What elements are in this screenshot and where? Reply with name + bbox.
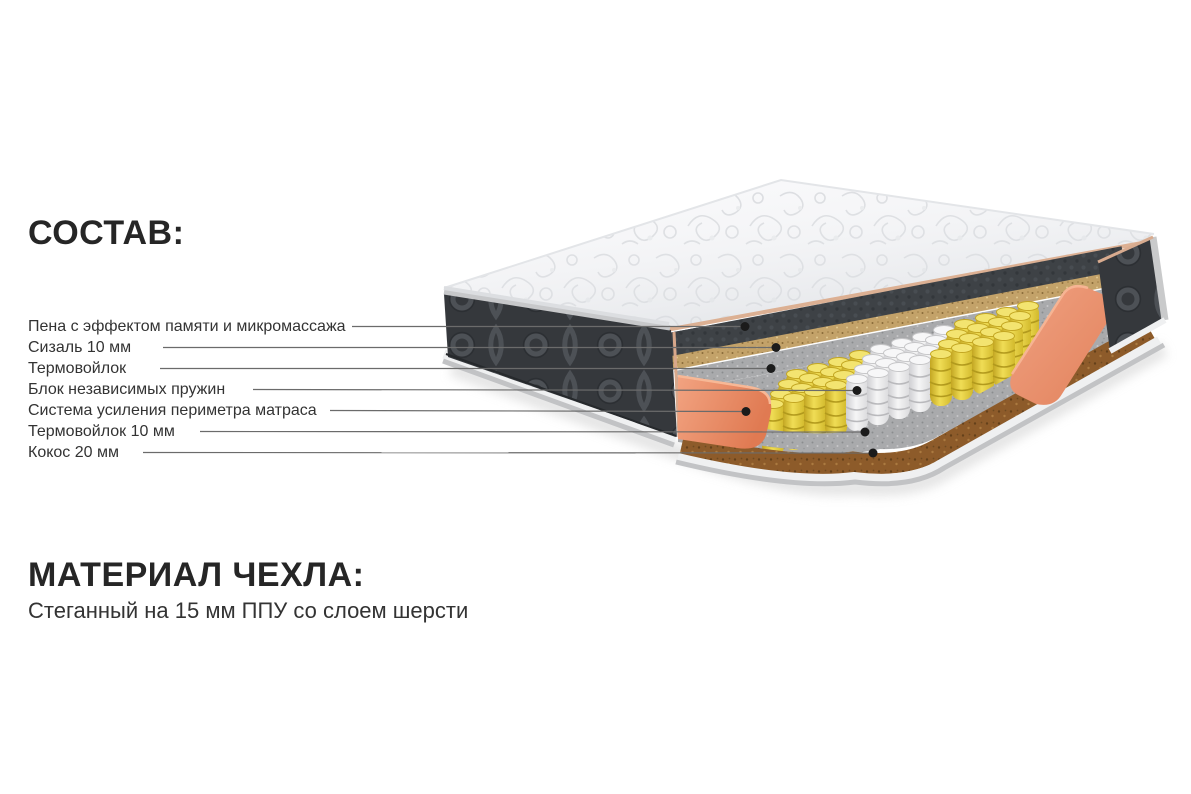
leader-dot-springs xyxy=(853,386,862,395)
leader-dot-sisal xyxy=(772,343,781,352)
mattress-illustration xyxy=(0,0,1191,794)
leader-dot-felt xyxy=(767,364,776,373)
mattress-composition-diagram: СОСТАВ: Пена с эффектом памяти и микрома… xyxy=(0,0,1191,794)
leader-line-felt-10 xyxy=(200,432,865,433)
leader-dot-felt-10 xyxy=(861,428,870,437)
leader-dot-perimeter xyxy=(742,407,751,416)
leader-dot-memory-foam xyxy=(741,322,750,331)
leader-dot-coconut xyxy=(869,449,878,458)
leader-line-coconut xyxy=(143,453,873,454)
